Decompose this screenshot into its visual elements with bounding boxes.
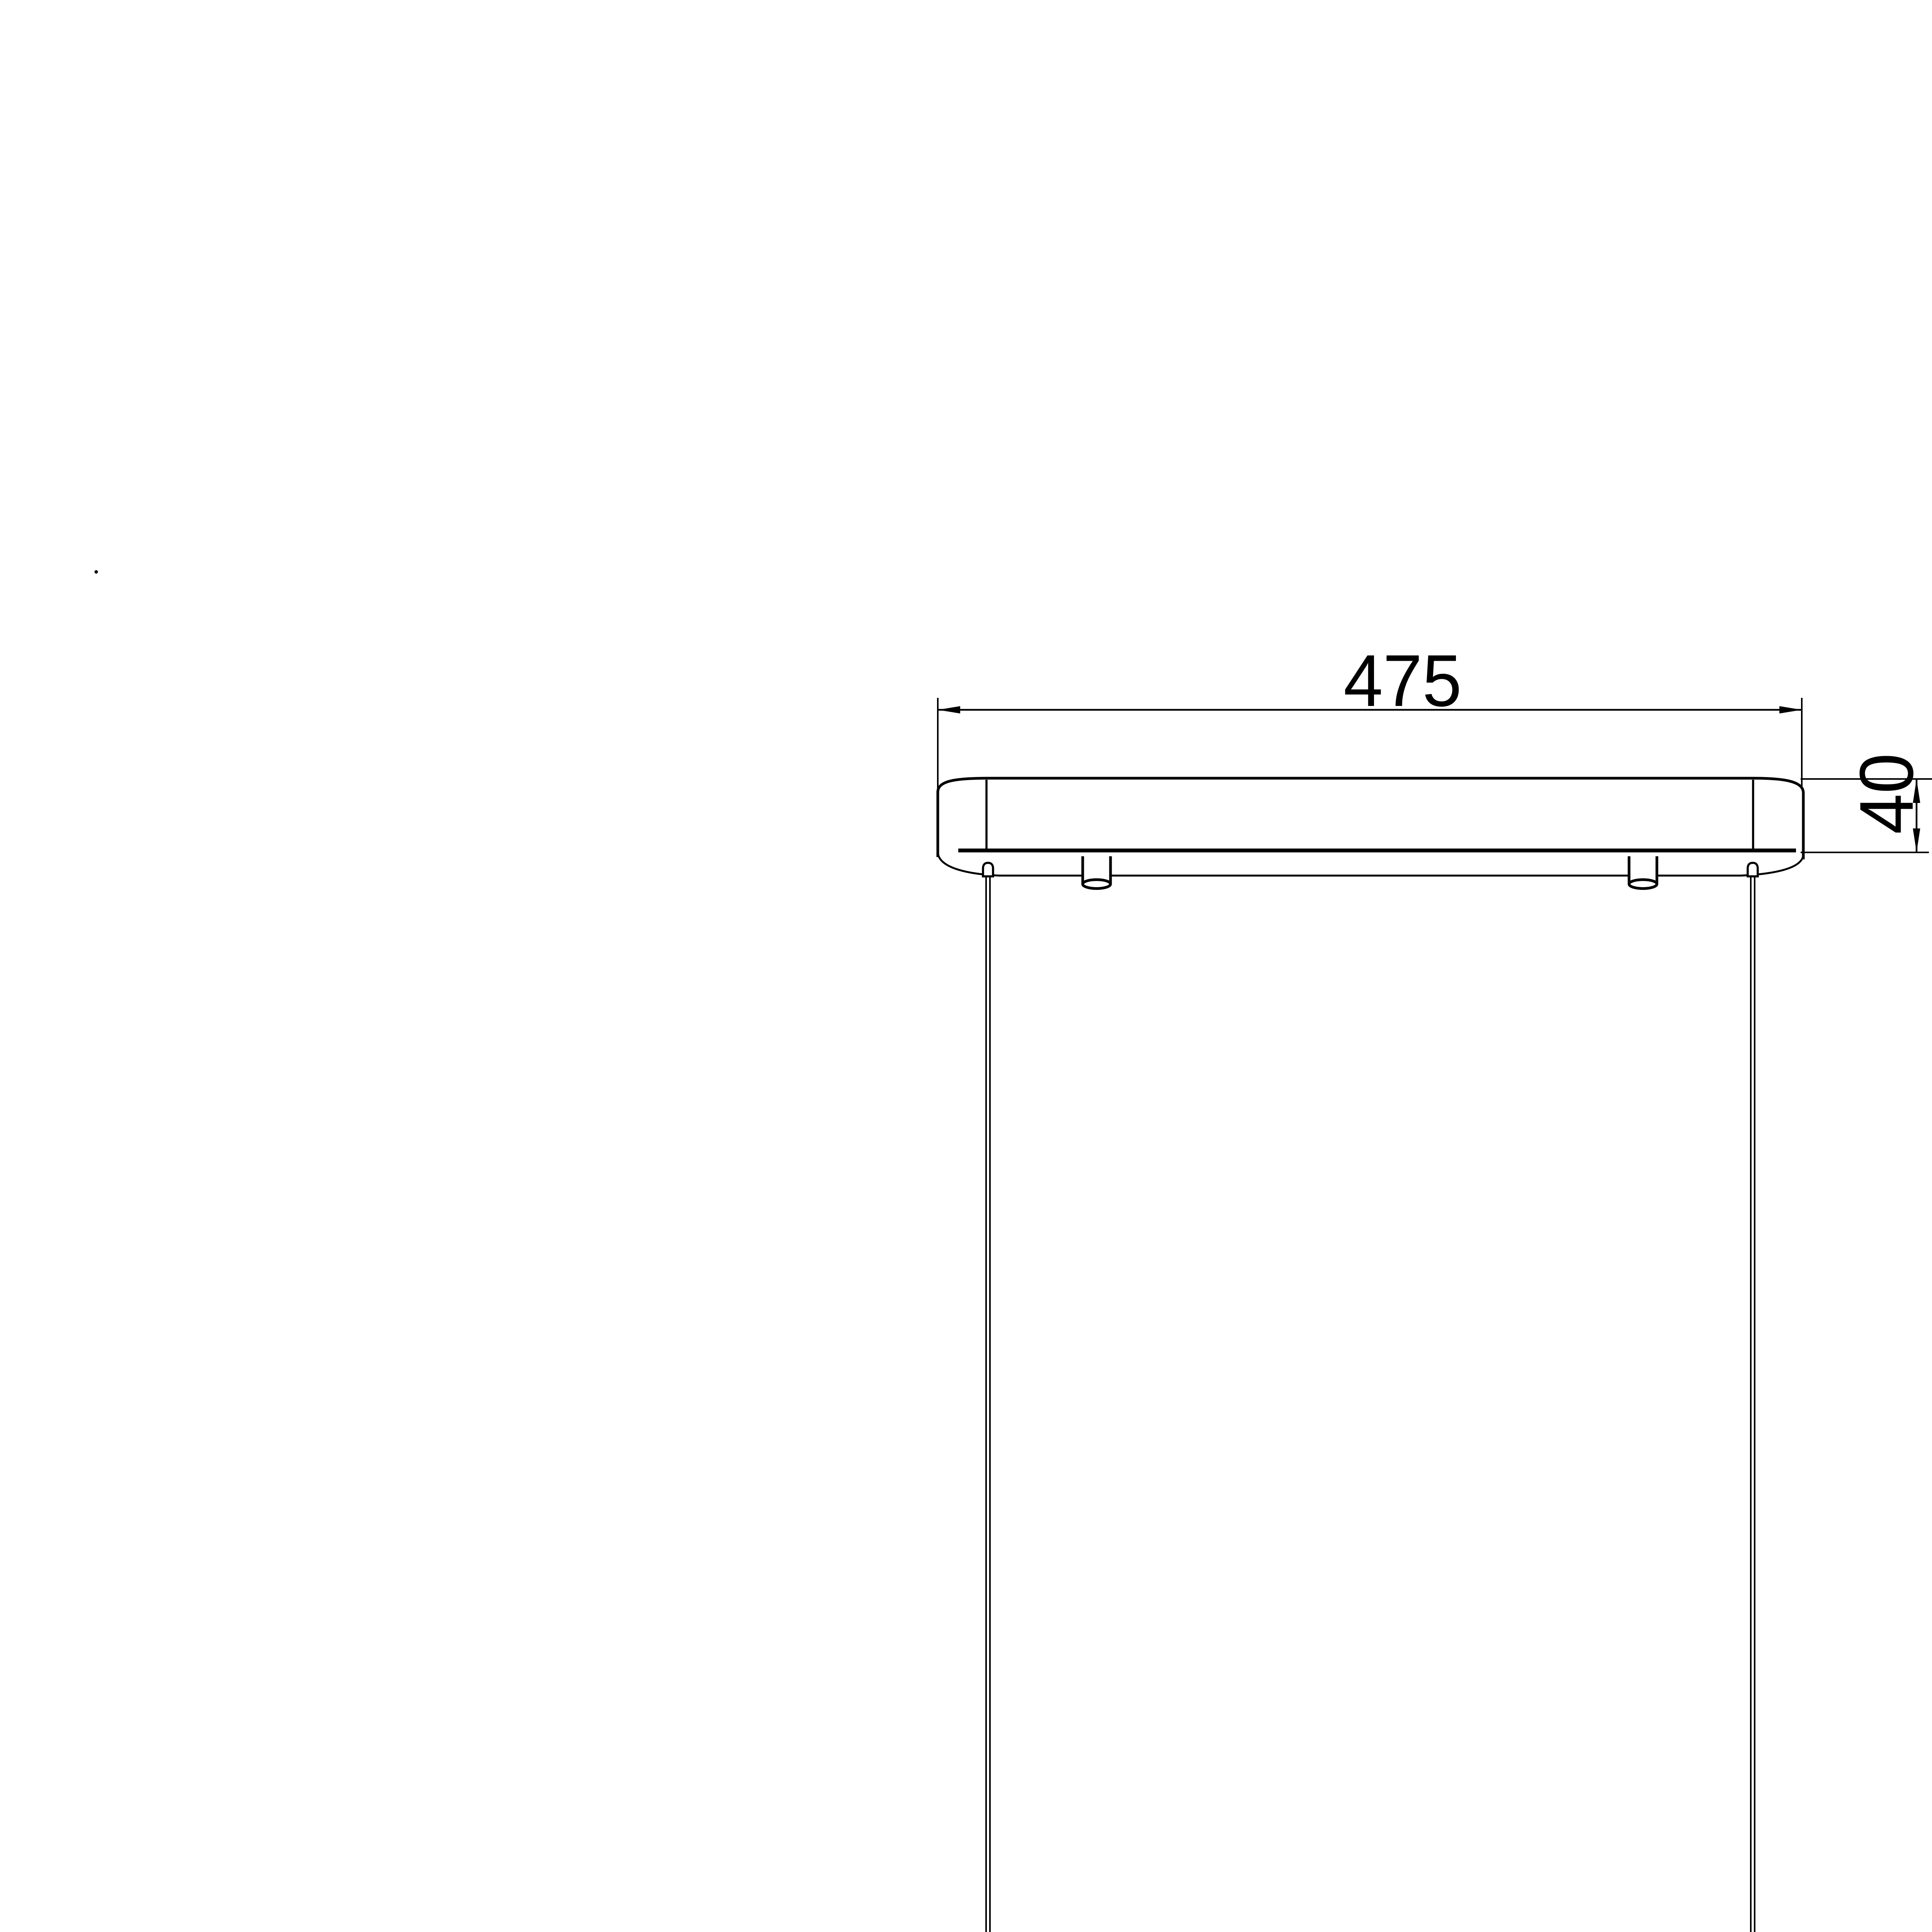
svg-text:40: 40 xyxy=(1844,753,1929,834)
svg-text:475: 475 xyxy=(1344,640,1462,722)
